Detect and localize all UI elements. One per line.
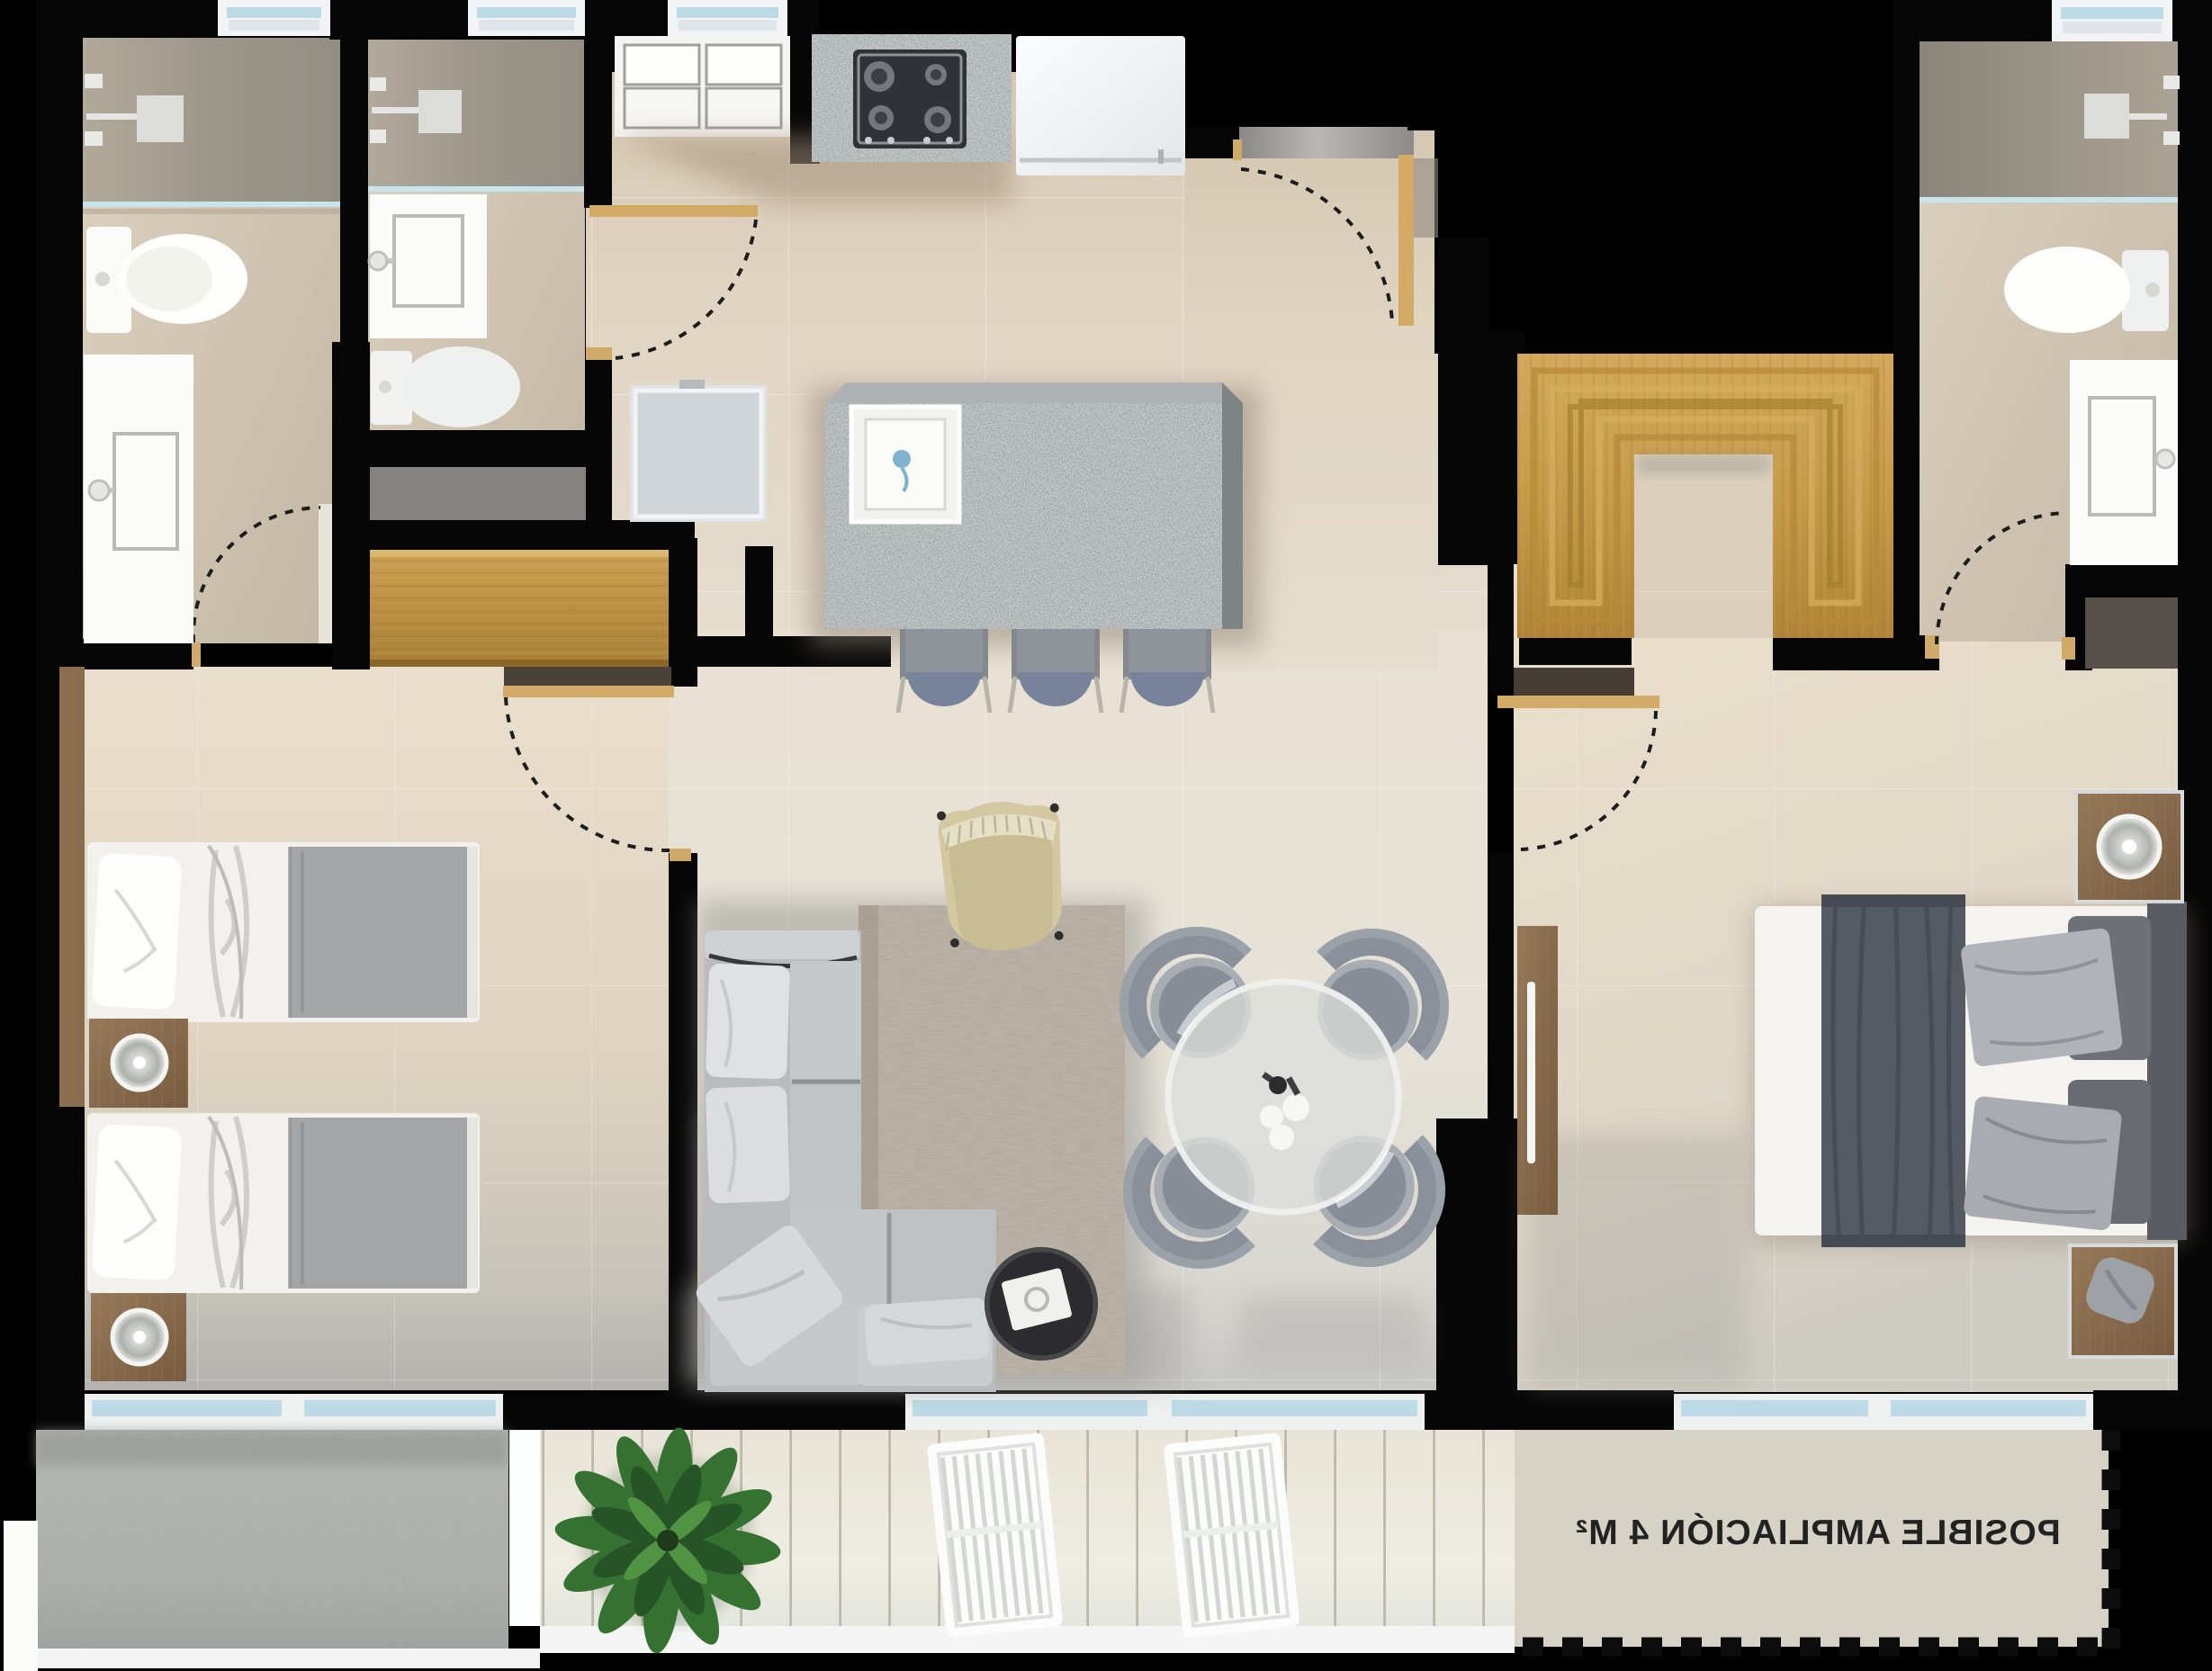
svg-text:POSIBLE AMPLIACIÓN 4 M²: POSIBLE AMPLIACIÓN 4 M² [1575,1513,2060,1552]
